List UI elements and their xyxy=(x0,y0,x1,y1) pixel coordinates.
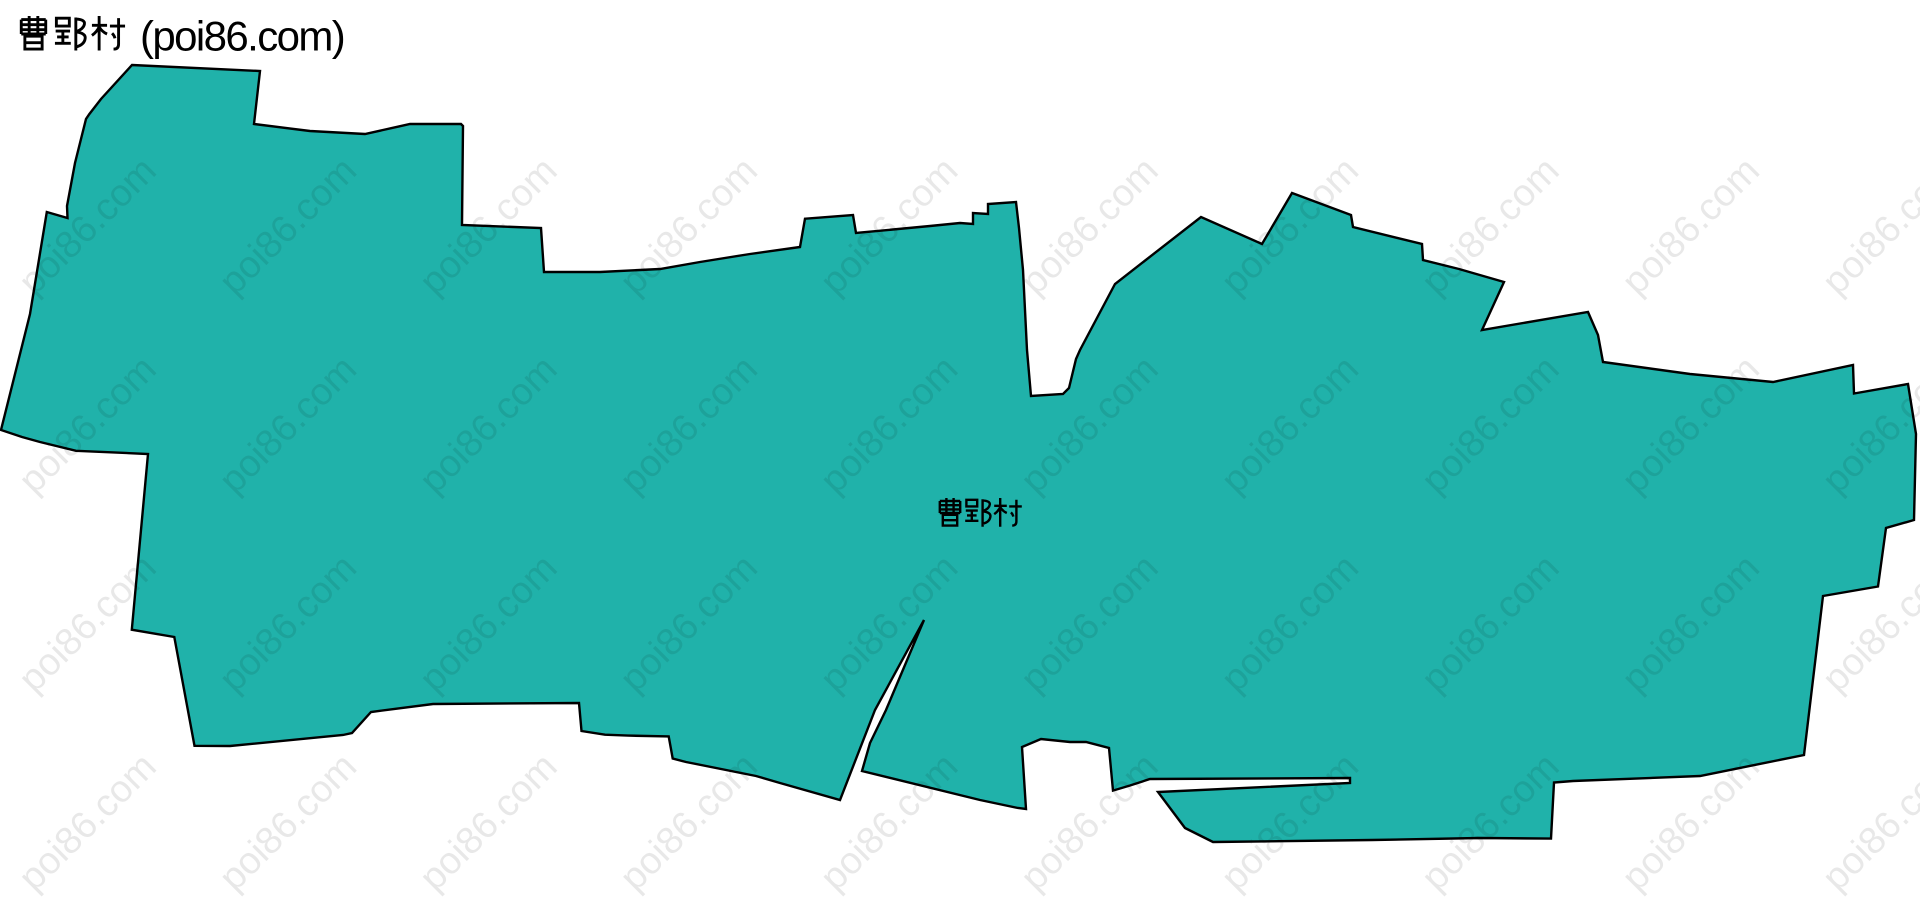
svg-text:poi86.com: poi86.com xyxy=(211,745,365,899)
svg-text:poi86.com: poi86.com xyxy=(1815,149,1920,303)
svg-text:poi86.com: poi86.com xyxy=(612,745,766,899)
svg-text:poi86.com: poi86.com xyxy=(11,745,165,899)
svg-text:poi86.com: poi86.com xyxy=(1614,149,1768,303)
svg-text:poi86.com: poi86.com xyxy=(412,745,566,899)
svg-text:poi86.com: poi86.com xyxy=(1815,745,1920,899)
svg-text:(poi86.com): (poi86.com) xyxy=(140,13,344,60)
svg-text:poi86.com: poi86.com xyxy=(1013,745,1167,899)
